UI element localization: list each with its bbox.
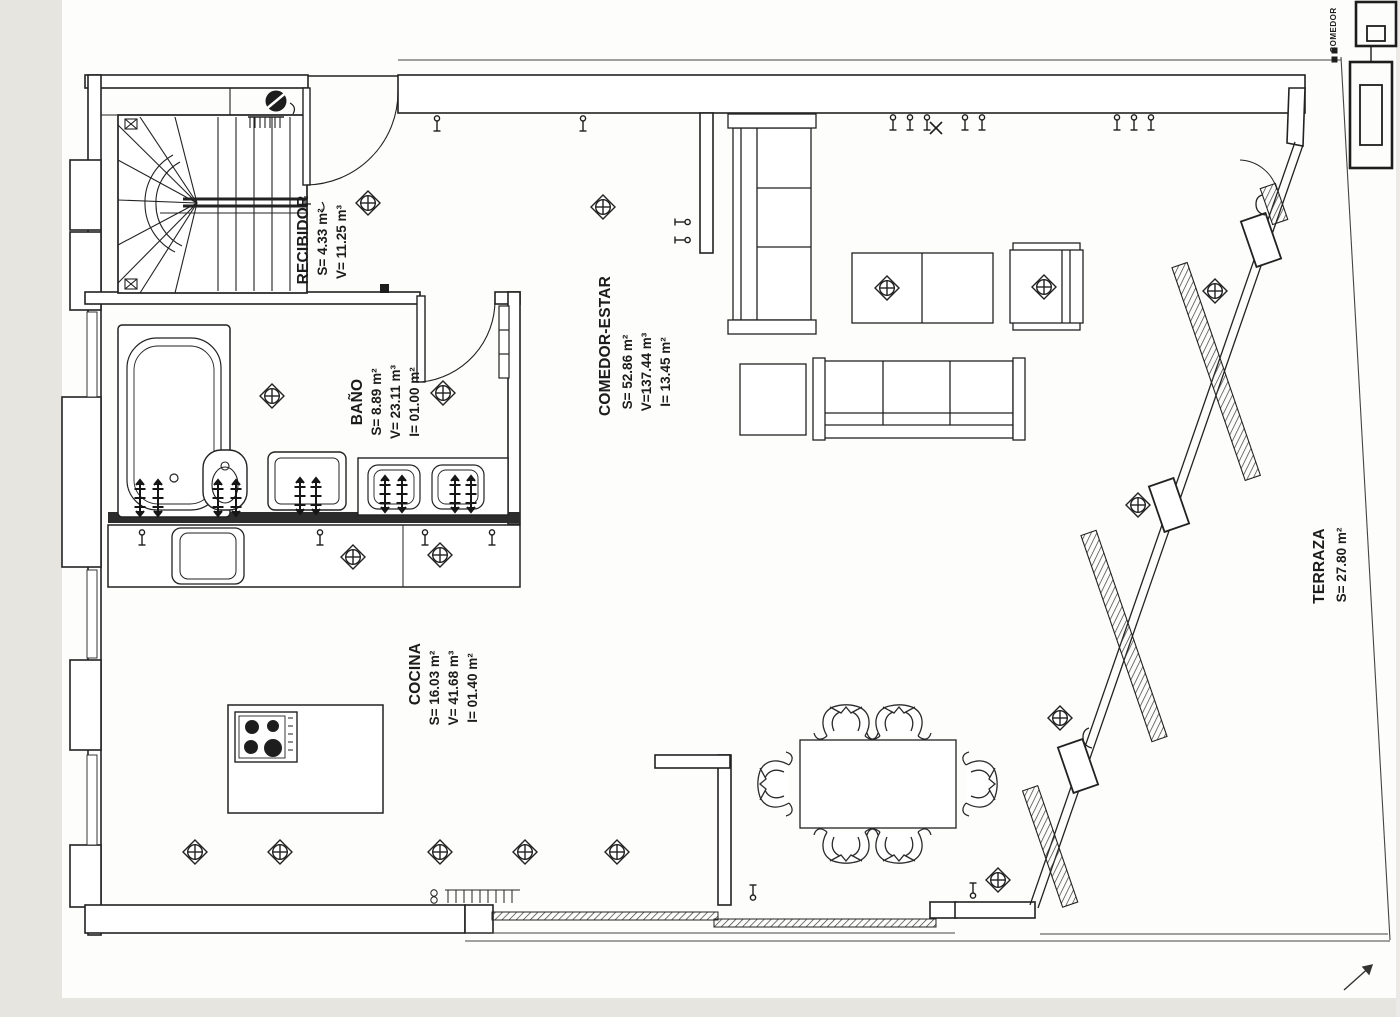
scan-margin-left	[0, 0, 62, 1017]
scan-margin-bottom	[0, 998, 1400, 1017]
room-volume: V= 41.68 m³	[446, 650, 461, 725]
corner-label: COMEDOR	[1329, 7, 1338, 52]
kitchen-sink	[172, 528, 244, 584]
room-name: BAÑO	[348, 379, 366, 425]
cooktop	[235, 712, 297, 762]
room-surface: S= 4.33 m²	[315, 208, 330, 276]
side-table	[740, 364, 806, 435]
room-surface: S= 27.80 m²	[1334, 527, 1349, 602]
room-name: RECIBIDOR	[295, 196, 312, 285]
dining-table	[800, 740, 956, 828]
scan-margin-right	[1396, 0, 1400, 1017]
kitchen-island	[228, 705, 383, 813]
bidet	[203, 450, 247, 510]
room-volume: V=137.44 m³	[639, 332, 654, 411]
room-name: COCINA	[407, 643, 424, 705]
room-name: COMEDOR-ESTAR	[597, 276, 614, 416]
room-surface: S= 16.03 m²	[427, 650, 442, 725]
washbasin-counter	[358, 458, 508, 515]
room-surface: S= 8.89 m²	[369, 368, 384, 436]
room-name: TERRAZA	[1311, 528, 1328, 603]
coffee-table	[852, 253, 993, 323]
radiator	[499, 306, 509, 378]
room-volume: V= 23.11 m³	[388, 365, 403, 439]
room-illumination: I= 01.00 m²	[407, 367, 422, 437]
kitchen-counter	[108, 525, 520, 587]
floor-plan-page: COMEDOR RECIBIDOR S= 4.33 m² V= 11.25 m³…	[0, 0, 1400, 1017]
floor-plan-drawing: COMEDOR RECIBIDOR S= 4.33 m² V= 11.25 m³…	[0, 0, 1400, 1017]
room-volume: V= 11.25 m³	[334, 205, 349, 279]
washbasin	[368, 465, 420, 509]
room-illumination: I= 13.45 m²	[658, 337, 673, 407]
staircase	[101, 88, 307, 293]
sofa-long	[813, 358, 1025, 440]
wall-box-icon	[380, 284, 389, 293]
sofa-tall	[728, 114, 816, 334]
room-illumination: I= 01.40 m²	[465, 653, 480, 723]
room-label-recibidor: RECIBIDOR S= 4.33 m² V= 11.25 m³	[295, 196, 349, 285]
room-surface: S= 52.86 m²	[620, 334, 635, 409]
shower-tray	[268, 452, 346, 510]
